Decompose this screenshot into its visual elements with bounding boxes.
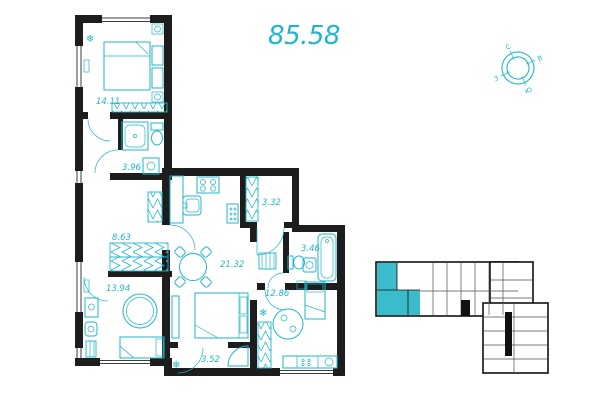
room-area-corridor: 3.52 — [201, 355, 220, 365]
furniture-wardrobe — [246, 177, 258, 221]
room-area-bathroom-1: 3.96 — [122, 163, 142, 173]
room-area-kitchen-living: 12.86 — [265, 289, 290, 299]
room-area-living-room: 21.32 — [220, 260, 244, 270]
walls — [75, 15, 345, 376]
room-area-bedroom-2: 13.94 — [106, 284, 130, 294]
furniture-kitchen — [170, 176, 238, 223]
apartment-plan: ❄ — [75, 15, 345, 376]
room-area-bedroom-1: 14.11 — [96, 97, 120, 107]
room-area-hallway: 8.63 — [112, 233, 131, 243]
compass-south-label: Ю — [524, 86, 534, 96]
room-area-wardrobe: 3.32 — [262, 198, 281, 208]
room-area-bathroom-2: 3.46 — [301, 244, 321, 254]
floorplan-page: 85.58 — [0, 0, 600, 400]
floorplan-canvas: 85.58 — [0, 0, 600, 400]
ac-snowflake-icon: ❄ — [172, 360, 180, 371]
furniture-bedroom-2 — [85, 294, 164, 358]
building-minimap — [376, 262, 548, 373]
furniture-entry — [257, 228, 284, 288]
compass-east-label: В — [536, 54, 543, 63]
furniture-bathroom-2 — [288, 234, 336, 281]
compass-west-label: З — [493, 74, 500, 83]
compass-north-label: С — [505, 42, 513, 51]
ac-snowflake-icon: ❄ — [259, 308, 267, 319]
total-area-label: 85.58 — [268, 21, 340, 51]
furniture-hallway — [84, 192, 195, 301]
compass-rose: С В Ю З — [483, 32, 554, 105]
ac-snowflake-icon: ❄ — [86, 34, 94, 45]
